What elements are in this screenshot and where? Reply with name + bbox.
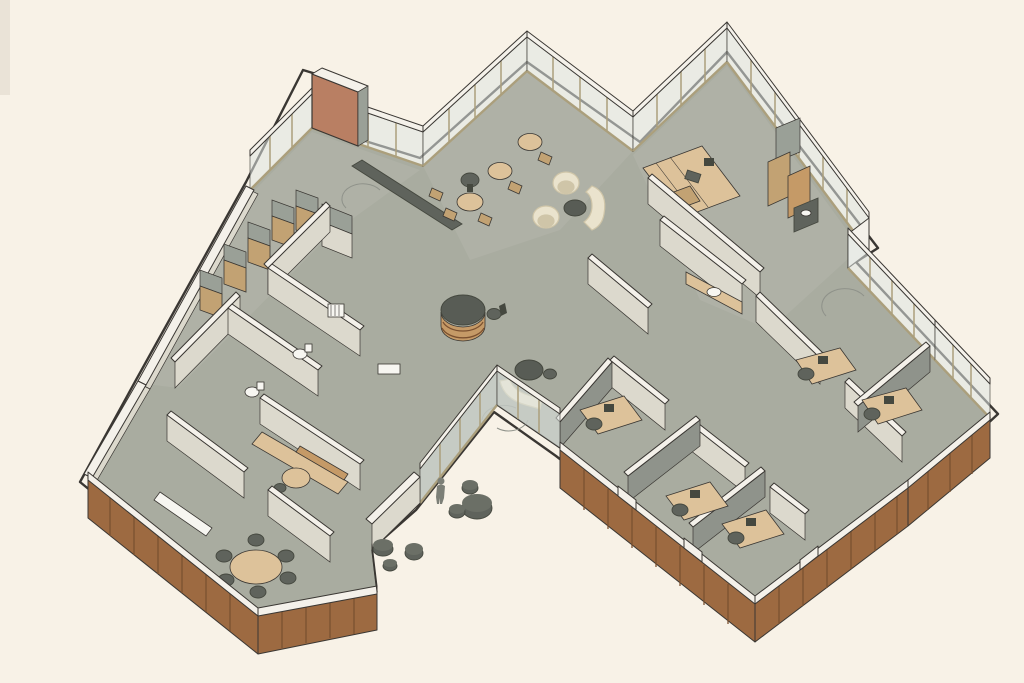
- coffee-table: [564, 200, 586, 216]
- pouf: [405, 543, 423, 560]
- pouf: [449, 504, 465, 518]
- pouf: [462, 494, 492, 519]
- scan-edge-artifact: [0, 0, 10, 95]
- radiator: [328, 304, 344, 317]
- floorplan-rendering: [0, 0, 1024, 683]
- small-round-table: [282, 468, 310, 488]
- pouf: [373, 539, 393, 556]
- pouf: [462, 480, 478, 494]
- stool: [487, 309, 501, 320]
- sink: [707, 288, 721, 297]
- wall-sink: [378, 364, 400, 374]
- pouf: [383, 559, 397, 571]
- isometric-scene: [0, 0, 1024, 683]
